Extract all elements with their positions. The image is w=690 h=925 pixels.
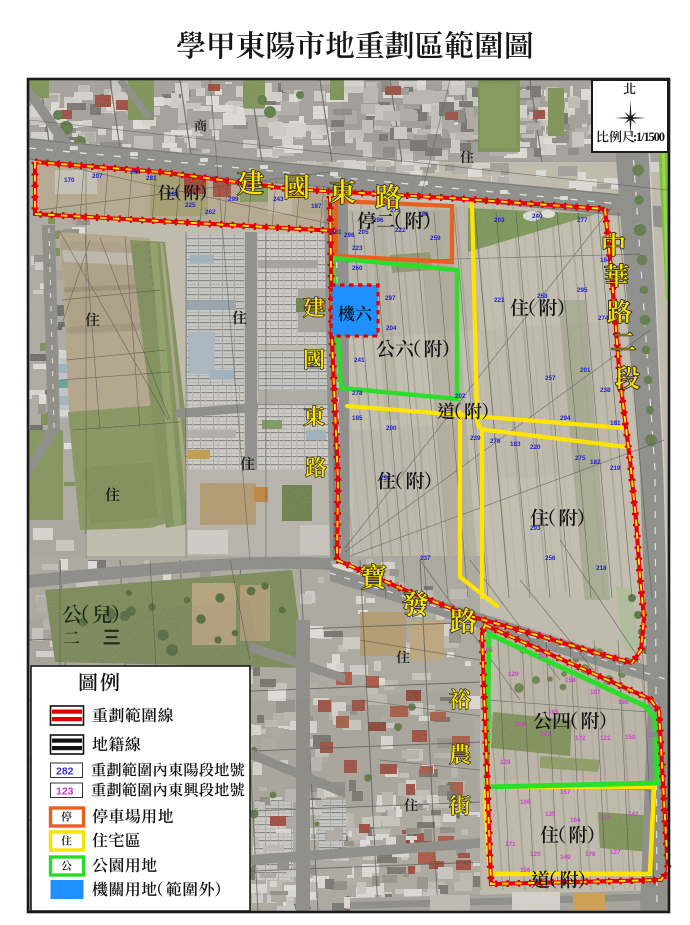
svg-text:293: 293: [530, 525, 541, 532]
svg-text:184: 184: [600, 257, 611, 264]
svg-text:172: 172: [575, 735, 586, 742]
svg-text:129: 129: [508, 671, 519, 678]
svg-text:281: 281: [146, 175, 157, 182]
svg-text:123: 123: [56, 786, 74, 798]
svg-text:181: 181: [610, 420, 621, 427]
svg-text:182: 182: [590, 459, 601, 466]
svg-text:202: 202: [455, 393, 466, 400]
svg-text:三: 三: [103, 628, 121, 648]
svg-text:127: 127: [610, 849, 621, 856]
svg-text:156: 156: [520, 867, 531, 874]
svg-text:171: 171: [505, 841, 516, 848]
svg-text:240: 240: [532, 213, 543, 220]
svg-text:114: 114: [515, 721, 526, 728]
svg-text::1/1500: :1/1500: [633, 130, 665, 144]
svg-text:221: 221: [494, 297, 505, 304]
svg-text:143: 143: [540, 731, 551, 738]
svg-text:157: 157: [560, 789, 571, 796]
svg-text:149: 149: [560, 854, 571, 861]
svg-text:178: 178: [585, 851, 596, 858]
svg-text:298: 298: [344, 232, 355, 239]
svg-text:299: 299: [228, 196, 239, 203]
svg-text:223: 223: [352, 245, 363, 252]
svg-text:277: 277: [577, 217, 588, 224]
svg-text:278: 278: [352, 390, 363, 397]
svg-text:282: 282: [56, 766, 74, 778]
svg-text:295: 295: [577, 287, 588, 294]
svg-text:164: 164: [570, 817, 581, 824]
svg-text:262: 262: [205, 209, 216, 216]
svg-text:275: 275: [575, 455, 586, 462]
svg-text:100: 100: [538, 653, 549, 660]
svg-text:225: 225: [185, 202, 196, 209]
svg-text:203: 203: [494, 217, 505, 224]
svg-text:244: 244: [130, 169, 141, 176]
svg-text:259: 259: [430, 235, 441, 242]
svg-text:135: 135: [545, 811, 556, 818]
svg-text:107: 107: [590, 689, 601, 696]
svg-text:220: 220: [530, 444, 541, 451]
svg-text:106: 106: [520, 799, 531, 806]
svg-text:257: 257: [545, 375, 556, 382]
svg-text:187: 187: [311, 203, 322, 210]
svg-text:207: 207: [92, 173, 103, 180]
svg-text:170: 170: [64, 177, 75, 184]
svg-text:158: 158: [565, 677, 576, 684]
svg-text:150: 150: [625, 734, 636, 741]
svg-text:165: 165: [548, 709, 559, 716]
svg-text:243: 243: [273, 196, 284, 203]
svg-text:179: 179: [648, 732, 659, 739]
svg-text:142: 142: [628, 811, 639, 818]
svg-text:205: 205: [358, 229, 369, 236]
svg-text:276: 276: [490, 438, 501, 445]
svg-text:256: 256: [545, 555, 556, 562]
svg-text:238: 238: [600, 387, 611, 394]
svg-text:113: 113: [600, 814, 611, 821]
svg-text:105: 105: [482, 647, 493, 654]
svg-text:120: 120: [530, 851, 541, 858]
svg-text:185: 185: [352, 415, 363, 422]
svg-text:241: 241: [354, 357, 365, 364]
svg-text:222: 222: [395, 227, 406, 234]
svg-text:121: 121: [600, 735, 611, 742]
svg-text:128: 128: [500, 759, 511, 766]
svg-text:183: 183: [510, 441, 521, 448]
svg-text:237: 237: [420, 555, 431, 562]
svg-text:260: 260: [352, 265, 363, 272]
svg-text:204: 204: [386, 325, 397, 332]
svg-text:218: 218: [596, 565, 607, 572]
svg-text:219: 219: [610, 465, 621, 472]
svg-text:200: 200: [386, 425, 397, 432]
svg-text:239: 239: [470, 435, 481, 442]
svg-text:136: 136: [618, 699, 629, 706]
svg-text:258: 258: [537, 293, 548, 300]
svg-text:201: 201: [580, 367, 591, 374]
svg-text:297: 297: [385, 295, 396, 302]
svg-text:261: 261: [331, 229, 342, 236]
svg-text:294: 294: [560, 415, 571, 422]
